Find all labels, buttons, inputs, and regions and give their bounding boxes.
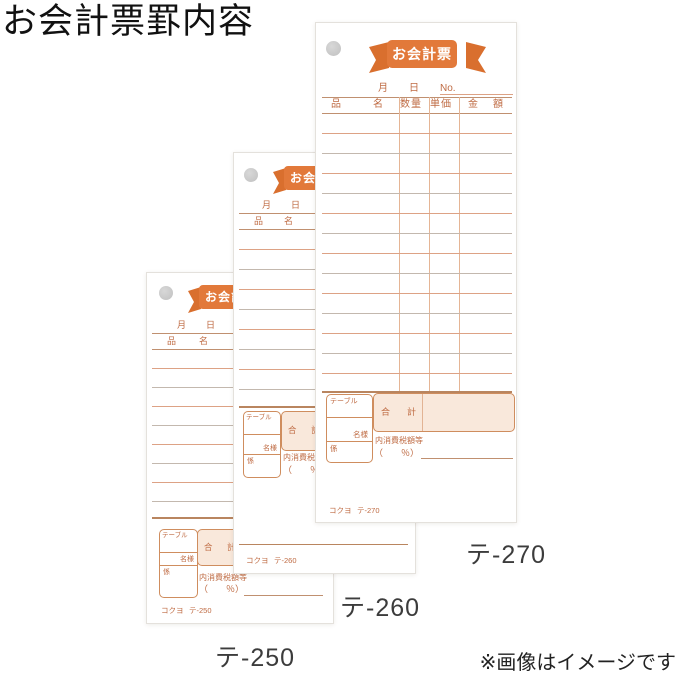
month-label: 月 (177, 321, 186, 330)
table-top-rule (322, 97, 512, 98)
tax-label: 内消費税額等 (199, 574, 247, 582)
row-rule (322, 173, 512, 174)
ribbon-banner: お会計票 (367, 39, 488, 73)
table-label: テーブル (330, 398, 358, 405)
caption-te260: テ-260 (340, 596, 420, 621)
column-item-label: 名 (284, 217, 293, 226)
ribbon-title: お会計票 (387, 47, 457, 61)
product-code: テ-250 (189, 607, 212, 615)
box-divider (160, 565, 197, 566)
tax-rule (421, 458, 513, 459)
total-label: 合 (288, 426, 297, 435)
column-unit-price-label: 単価 (430, 100, 452, 110)
row-rule (322, 373, 512, 374)
table-label: テーブル (246, 415, 272, 422)
tax-label: 内消費税額等 (375, 437, 423, 445)
day-label: 日 (409, 84, 419, 94)
product-code: テ-260 (274, 557, 297, 565)
total-box: 合 計 (373, 393, 515, 432)
row-rule (322, 233, 512, 234)
tax-rule (244, 595, 323, 596)
total-label: 合 (204, 543, 213, 552)
total-label: 合 (381, 408, 390, 417)
header-rule (322, 113, 512, 114)
row-rule (322, 193, 512, 194)
punch-hole-icon (326, 41, 341, 56)
brand-label: コクヨ (246, 557, 269, 565)
summary-rule (239, 544, 408, 545)
number-label: No. (440, 84, 456, 94)
row-rule (322, 153, 512, 154)
total-box-divider (422, 394, 423, 431)
column-amount-label: 金 (468, 100, 478, 110)
table-label: テーブル (162, 533, 188, 540)
guests-label: 名様 (353, 431, 368, 439)
column-item-label: 品 (254, 217, 263, 226)
row-rule (322, 313, 512, 314)
staff-label: 係 (163, 569, 170, 576)
table-number-box: テーブル 名様 係 (243, 411, 281, 478)
brand-label: コクヨ (161, 607, 184, 615)
product-code: テ-270 (357, 507, 380, 515)
column-amount-label: 額 (493, 100, 503, 110)
box-divider (327, 417, 372, 418)
column-item-label: 品 (331, 100, 341, 110)
brand-label: コクヨ (329, 507, 352, 515)
table-number-box: テーブル 名様 係 (159, 529, 198, 598)
page-title: お会計票罫内容 (2, 4, 254, 39)
guests-label: 名様 (263, 445, 277, 452)
row-rule (322, 213, 512, 214)
month-label: 月 (262, 201, 271, 210)
box-divider (327, 441, 372, 442)
box-divider (244, 434, 280, 435)
number-rule (440, 94, 513, 95)
image-disclaimer-note: ※画像はイメージです (480, 653, 676, 673)
column-rule (459, 97, 460, 393)
box-divider (160, 552, 197, 553)
column-item-label: 品 (167, 337, 176, 346)
row-rule (322, 133, 512, 134)
staff-label: 係 (330, 445, 338, 453)
row-rule (322, 293, 512, 294)
table-number-box: テーブル 名様 係 (326, 394, 373, 463)
order-slip-te270: お会計票 月 日 No. 品 名 数量 単価 金 額 テーブル 名様 係 合 計… (315, 22, 517, 523)
row-rule (322, 273, 512, 274)
day-label: 日 (291, 201, 300, 210)
column-rule (429, 97, 430, 393)
month-label: 月 (378, 84, 388, 94)
column-item-label: 名 (199, 337, 208, 346)
total-label: 計 (407, 408, 416, 417)
tax-percent-label: （ ％） (199, 585, 244, 594)
box-divider (244, 454, 280, 455)
product-image-canvas: お会計票罫内容 お会計票 月 日 No. 品 名 数量 単価 金 額 テーブル (0, 0, 679, 681)
row-rule (322, 353, 512, 354)
column-item-label: 名 (373, 100, 383, 110)
staff-label: 係 (247, 458, 254, 465)
punch-hole-icon (244, 168, 258, 182)
punch-hole-icon (159, 286, 173, 300)
row-rule (322, 333, 512, 334)
guests-label: 名様 (180, 556, 194, 563)
tax-percent-label: （ ％） (374, 449, 419, 458)
caption-te270: テ-270 (466, 543, 546, 568)
caption-te250: テ-250 (215, 646, 295, 671)
column-qty-label: 数量 (400, 100, 422, 110)
column-rule (399, 97, 400, 393)
row-rule (322, 253, 512, 254)
day-label: 日 (206, 321, 215, 330)
